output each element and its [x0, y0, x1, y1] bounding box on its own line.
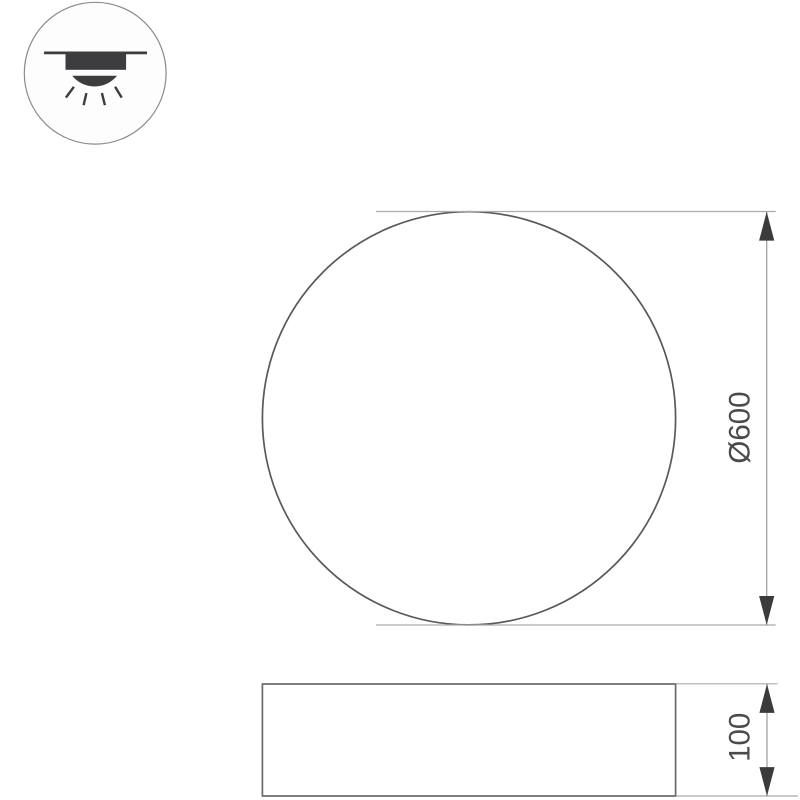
svg-text:100: 100	[724, 713, 757, 762]
svg-text:Ø600: Ø600	[724, 391, 757, 463]
